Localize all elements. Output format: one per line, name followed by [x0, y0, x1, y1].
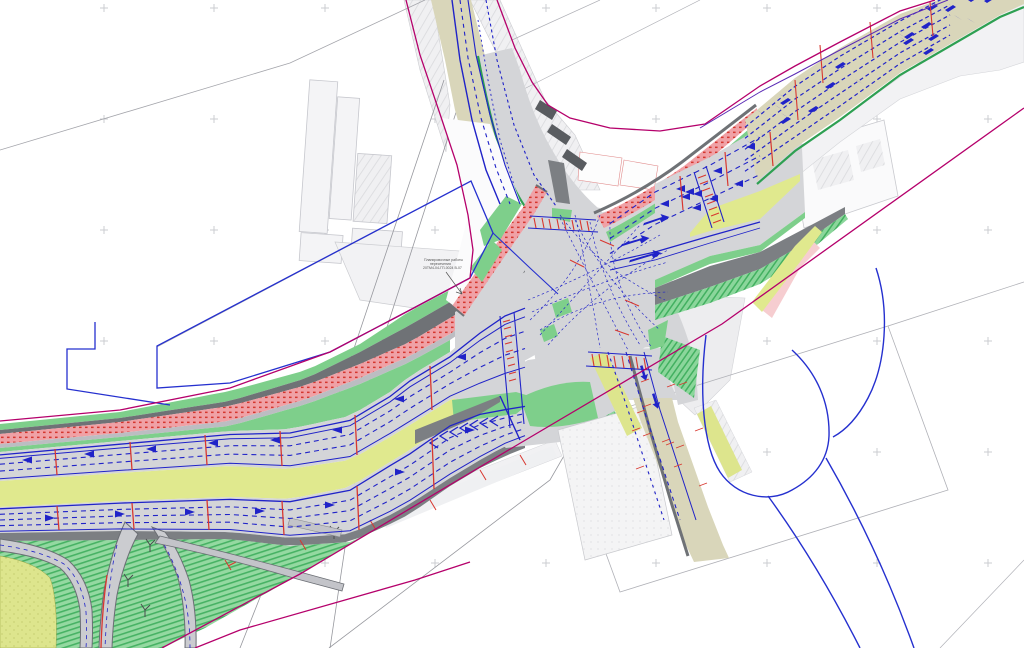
svg-text:20ТМ4-04-ГП-0024 В-07: 20ТМ4-04-ГП-0024 В-07 [423, 266, 462, 270]
